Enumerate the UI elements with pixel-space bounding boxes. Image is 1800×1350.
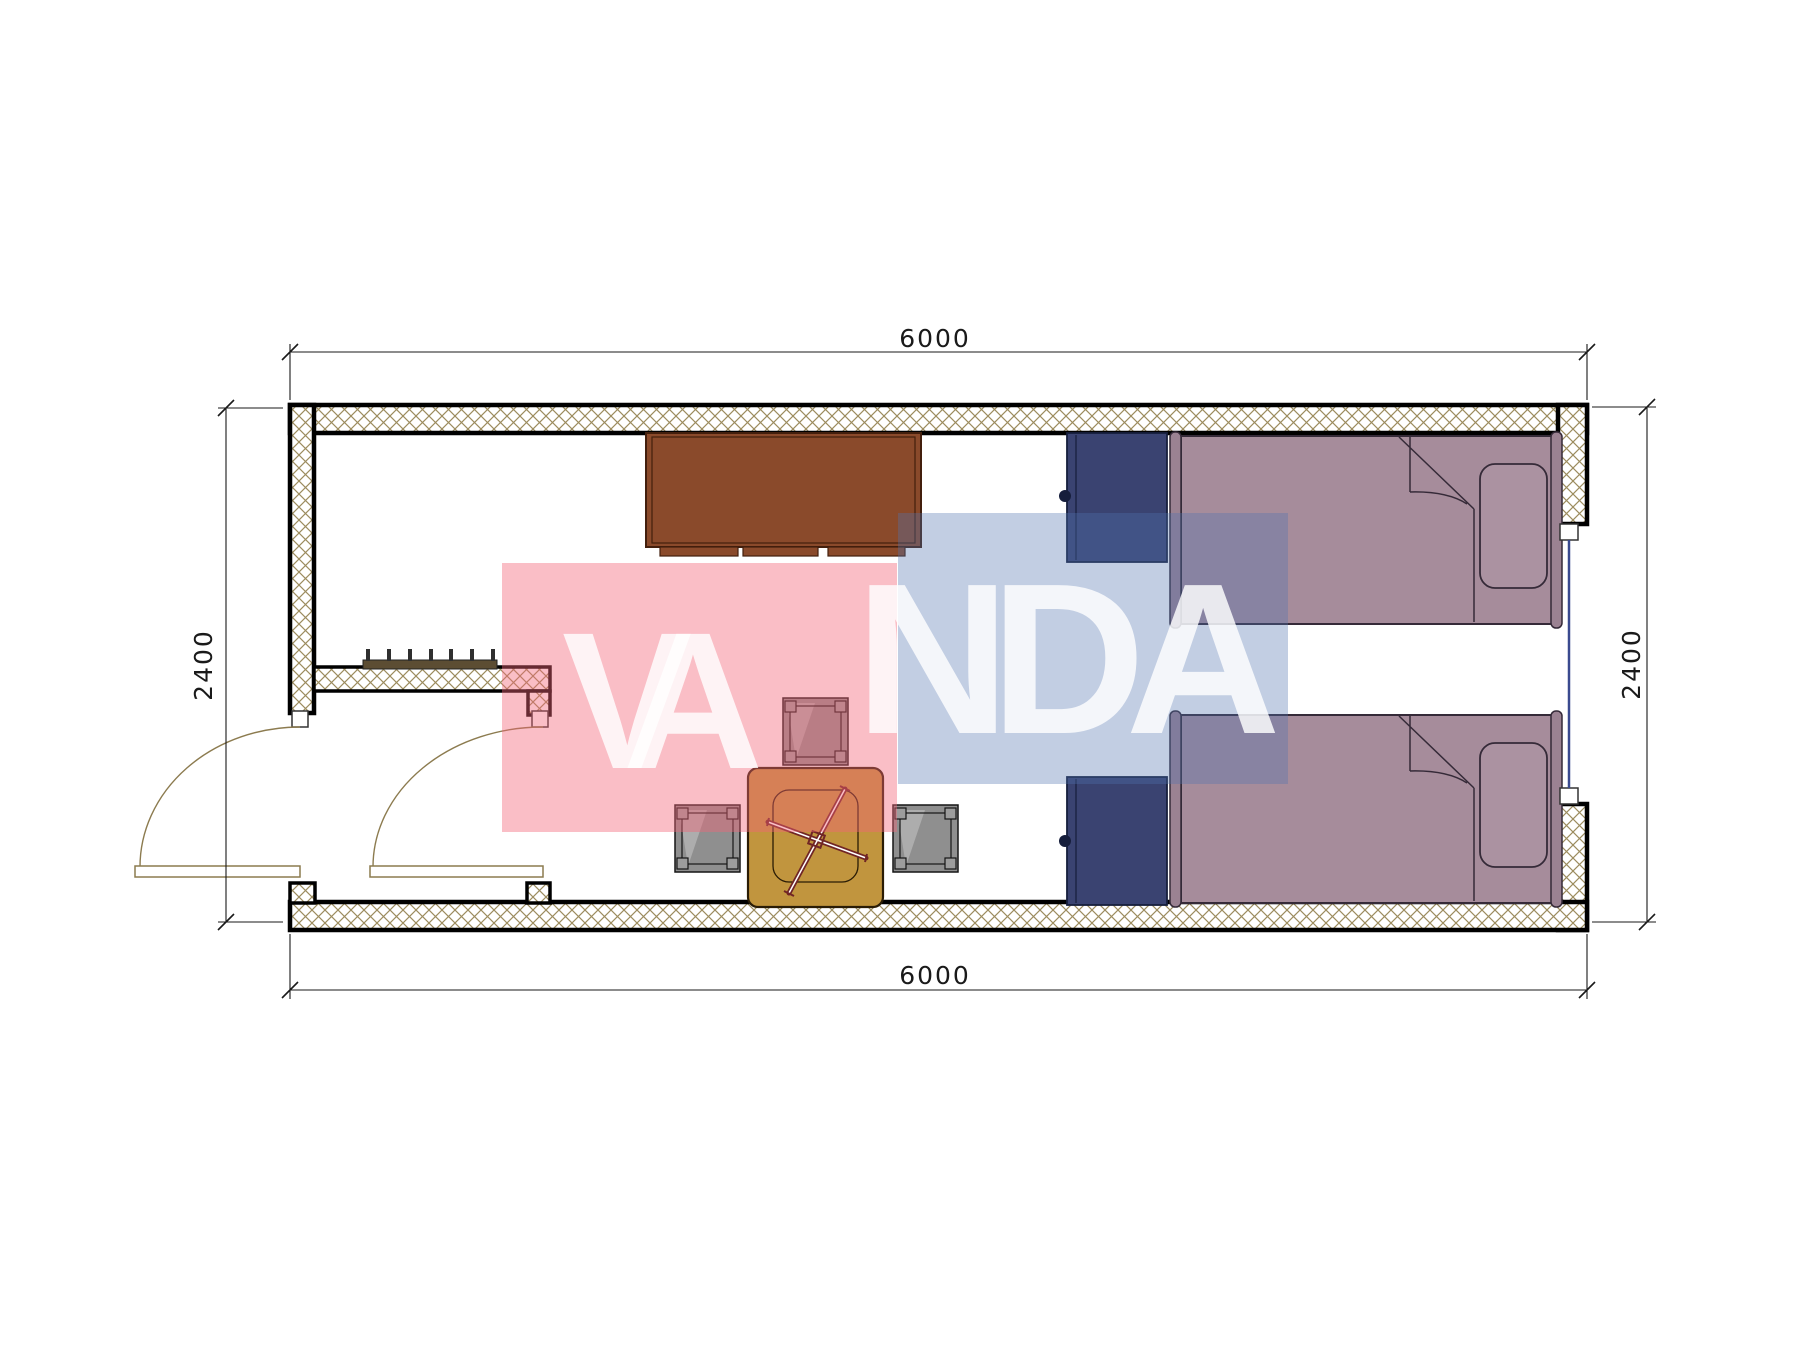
- door-post: [527, 883, 550, 903]
- nightstand-knob: [1059, 490, 1071, 502]
- coat-rack: [363, 649, 497, 669]
- dimension-label-top: 6000: [899, 324, 971, 353]
- door-jamb: [292, 711, 308, 727]
- dimension-bottom: 6000: [282, 934, 1595, 999]
- nightstand-knob: [1059, 835, 1071, 847]
- wall-left: [290, 405, 314, 713]
- door-swing-exterior: [140, 727, 300, 867]
- floor-plan-canvas: VA NDA 6000 6000 2400 2400: [0, 0, 1800, 1350]
- dimension-right: 2400: [1592, 399, 1656, 930]
- door-leaf-exterior: [135, 866, 300, 877]
- watermark-text-nda: NDA: [855, 538, 1276, 779]
- dimension-label-left: 2400: [189, 629, 218, 701]
- entry-doors: [135, 711, 550, 903]
- wall-top: [290, 405, 1587, 433]
- desk-drawer: [743, 547, 818, 556]
- dimension-label-bottom: 6000: [899, 961, 971, 990]
- dimension-top: 6000: [282, 324, 1595, 400]
- coat-rack-bar: [363, 660, 497, 669]
- window-jamb: [1560, 524, 1578, 540]
- door-post: [290, 883, 315, 903]
- nightstand-bottom: [1059, 777, 1167, 905]
- stool-right: [893, 805, 958, 872]
- dimension-label-right: 2400: [1617, 628, 1646, 700]
- window-jamb: [1560, 788, 1578, 804]
- door-leaf-interior: [370, 866, 543, 877]
- desk-drawer: [660, 547, 738, 556]
- dimension-left: 2400: [189, 400, 283, 930]
- desk-top: [646, 433, 921, 547]
- nightstand-body: [1067, 777, 1167, 905]
- wall-bottom: [290, 902, 1587, 930]
